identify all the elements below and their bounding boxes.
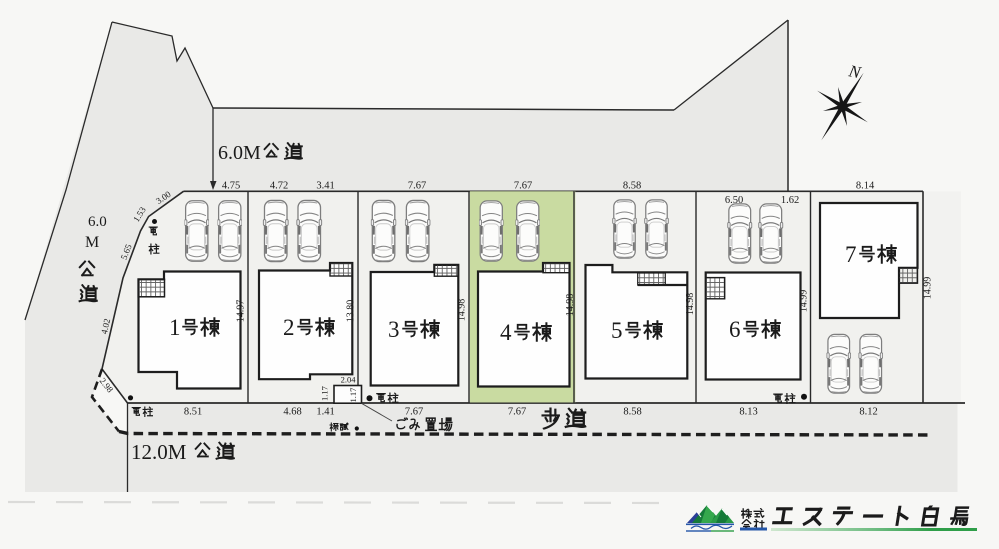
svg-text:7.67: 7.67 <box>408 181 426 192</box>
svg-text:6.50: 6.50 <box>725 195 743 206</box>
svg-text:7.67: 7.67 <box>508 407 526 418</box>
svg-text:14.97: 14.97 <box>236 300 247 323</box>
svg-text:13.80: 13.80 <box>346 300 357 323</box>
svg-text:12.0M: 12.0M <box>131 440 187 464</box>
svg-text:14.98: 14.98 <box>457 299 468 322</box>
svg-text:6: 6 <box>729 317 741 342</box>
svg-text:14.99: 14.99 <box>799 290 810 313</box>
svg-text:1.62: 1.62 <box>781 195 799 206</box>
svg-text:6.0M: 6.0M <box>218 142 261 164</box>
svg-text:14.98: 14.98 <box>685 293 696 316</box>
svg-text:4.68: 4.68 <box>283 407 301 418</box>
svg-text:8.13: 8.13 <box>739 407 757 418</box>
svg-text:1.17: 1.17 <box>320 386 330 401</box>
svg-text:4: 4 <box>500 320 512 345</box>
svg-text:1.41: 1.41 <box>316 407 334 418</box>
svg-text:M: M <box>85 234 99 251</box>
svg-text:14.99: 14.99 <box>923 277 934 300</box>
svg-text:8.51: 8.51 <box>184 407 202 418</box>
svg-text:8.14: 8.14 <box>856 181 875 192</box>
svg-text:2.04: 2.04 <box>341 375 357 385</box>
svg-text:14.98: 14.98 <box>565 294 576 317</box>
svg-text:7.67: 7.67 <box>514 181 532 192</box>
svg-text:1: 1 <box>169 315 181 340</box>
svg-text:2: 2 <box>283 315 295 340</box>
svg-text:4.75: 4.75 <box>222 181 240 192</box>
svg-text:7: 7 <box>845 242 857 267</box>
svg-text:3: 3 <box>388 317 400 342</box>
svg-text:8.58: 8.58 <box>623 407 641 418</box>
svg-text:8.12: 8.12 <box>859 407 877 418</box>
svg-text:4.72: 4.72 <box>270 181 288 192</box>
svg-text:1.17: 1.17 <box>348 388 358 403</box>
svg-text:8.58: 8.58 <box>623 181 641 192</box>
svg-text:5: 5 <box>611 318 623 343</box>
svg-text:6.0: 6.0 <box>88 214 107 230</box>
svg-text:3.41: 3.41 <box>316 181 334 192</box>
svg-text:7.67: 7.67 <box>405 407 423 418</box>
